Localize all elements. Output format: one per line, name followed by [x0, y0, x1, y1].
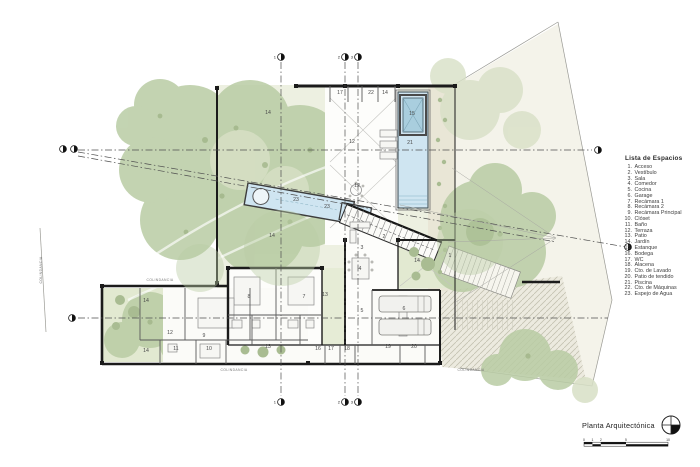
room-number: 8: [248, 294, 251, 300]
floor-plan-drawing: 1722141521141214232312213413875614141412…: [0, 0, 700, 467]
room-number: 3: [361, 245, 364, 251]
legend-title: Lista de Espacios: [625, 155, 682, 162]
architectural-plan-sheet: 1722141521141214232312213413875614141412…: [0, 0, 700, 467]
scale-number: 2: [600, 438, 602, 442]
scale-bar: 012510: [582, 437, 674, 449]
svg-text:2: 2: [338, 400, 341, 405]
room-number: 14: [414, 258, 420, 264]
room-number: 17: [337, 90, 343, 96]
title-block: Planta Arquitectónica 012510: [582, 414, 698, 454]
room-number: 22: [368, 90, 374, 96]
room-number: 13: [265, 344, 271, 350]
room-number: 14: [143, 348, 149, 354]
sofa: [350, 222, 370, 228]
svg-text:3: 3: [351, 400, 354, 405]
room-number: 4: [359, 266, 362, 272]
scale-number: 0: [583, 438, 585, 442]
room-number: 16: [315, 346, 321, 352]
svg-text:1: 1: [274, 55, 277, 60]
axis-marker: 1: [274, 54, 285, 61]
svg-text:2: 2: [338, 55, 341, 60]
axis-marker: 2: [338, 54, 349, 61]
legend-list: 1.Acceso2.Vestíbulo3.Sala4.Comedor5.Coci…: [619, 165, 682, 298]
room-number: 12: [354, 183, 360, 189]
space-list-legend: Lista de Espacios 1.Acceso2.Vestíbulo3.S…: [619, 155, 682, 298]
boundary-label: COLINDANCIA: [39, 256, 43, 283]
room-number: 1: [449, 253, 452, 259]
room-number: 11: [173, 346, 178, 352]
room-number: 13: [322, 292, 328, 298]
room-number: 10: [206, 346, 212, 352]
room-number: 14: [265, 110, 271, 116]
room-number: 14: [269, 233, 275, 239]
boundary-label: COLINDANCIA: [146, 278, 173, 282]
svg-text:3: 3: [351, 55, 354, 60]
axis-marker: 2: [338, 399, 349, 406]
scale-number: 5: [625, 438, 627, 442]
room-number: 12: [167, 330, 173, 336]
axis-marker: 3: [351, 399, 362, 406]
room-number: 15: [409, 111, 415, 117]
boundary-label: COLINDANCIA: [220, 368, 247, 372]
room-number: 23: [324, 204, 330, 210]
axis-marker: 1: [274, 399, 285, 406]
car-2: [379, 319, 431, 335]
room-number: 5: [361, 308, 364, 314]
axis-marker: 3: [351, 54, 362, 61]
bed-recamara2: [234, 277, 260, 305]
room-number: 6: [403, 306, 406, 312]
legend-item: 23.Espejo de Agua: [619, 292, 682, 298]
room-number: 17: [328, 346, 334, 352]
room-number: 9: [203, 333, 206, 339]
room-number: 20: [411, 344, 417, 350]
room-number: 14: [382, 90, 388, 96]
scale-number: 1: [591, 438, 593, 442]
boundary-label: COLINDANCIA: [457, 368, 484, 372]
room-number: 19: [385, 344, 391, 350]
axis-marker: [60, 146, 67, 153]
room-number: 18: [344, 346, 350, 352]
axis-marker: [71, 146, 78, 153]
room-number: 23: [293, 197, 299, 203]
room-number: 7: [303, 294, 306, 300]
axis-marker: [69, 315, 76, 322]
room-number: 12: [349, 139, 355, 145]
room-number: 14: [143, 298, 149, 304]
svg-text:1: 1: [274, 400, 277, 405]
room-number: 21: [407, 140, 413, 146]
scale-number: 10: [666, 438, 670, 442]
axis-marker: [595, 147, 602, 154]
drawing-title: Planta Arquitectónica: [582, 421, 655, 430]
north-indicator-icon: [660, 414, 682, 436]
room-number: 2: [383, 234, 386, 240]
